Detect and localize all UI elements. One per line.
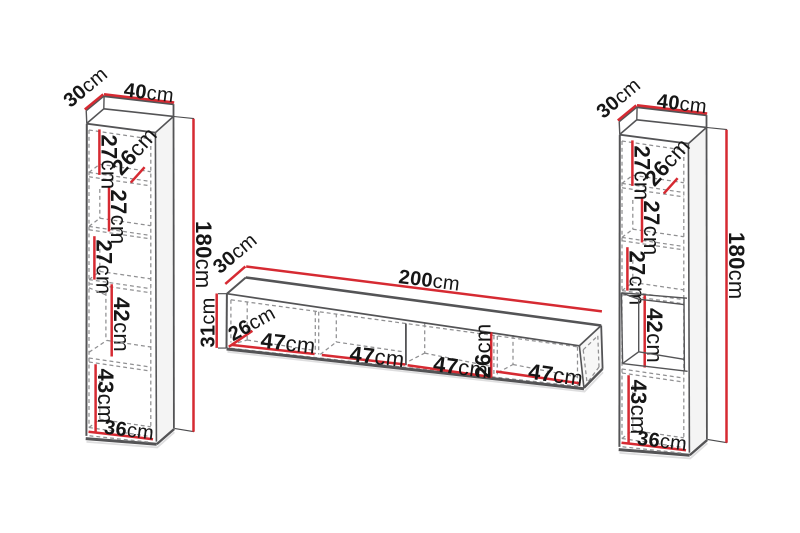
svg-text:31cm: 31cm: [198, 297, 220, 347]
svg-text:26cm: 26cm: [471, 323, 496, 378]
